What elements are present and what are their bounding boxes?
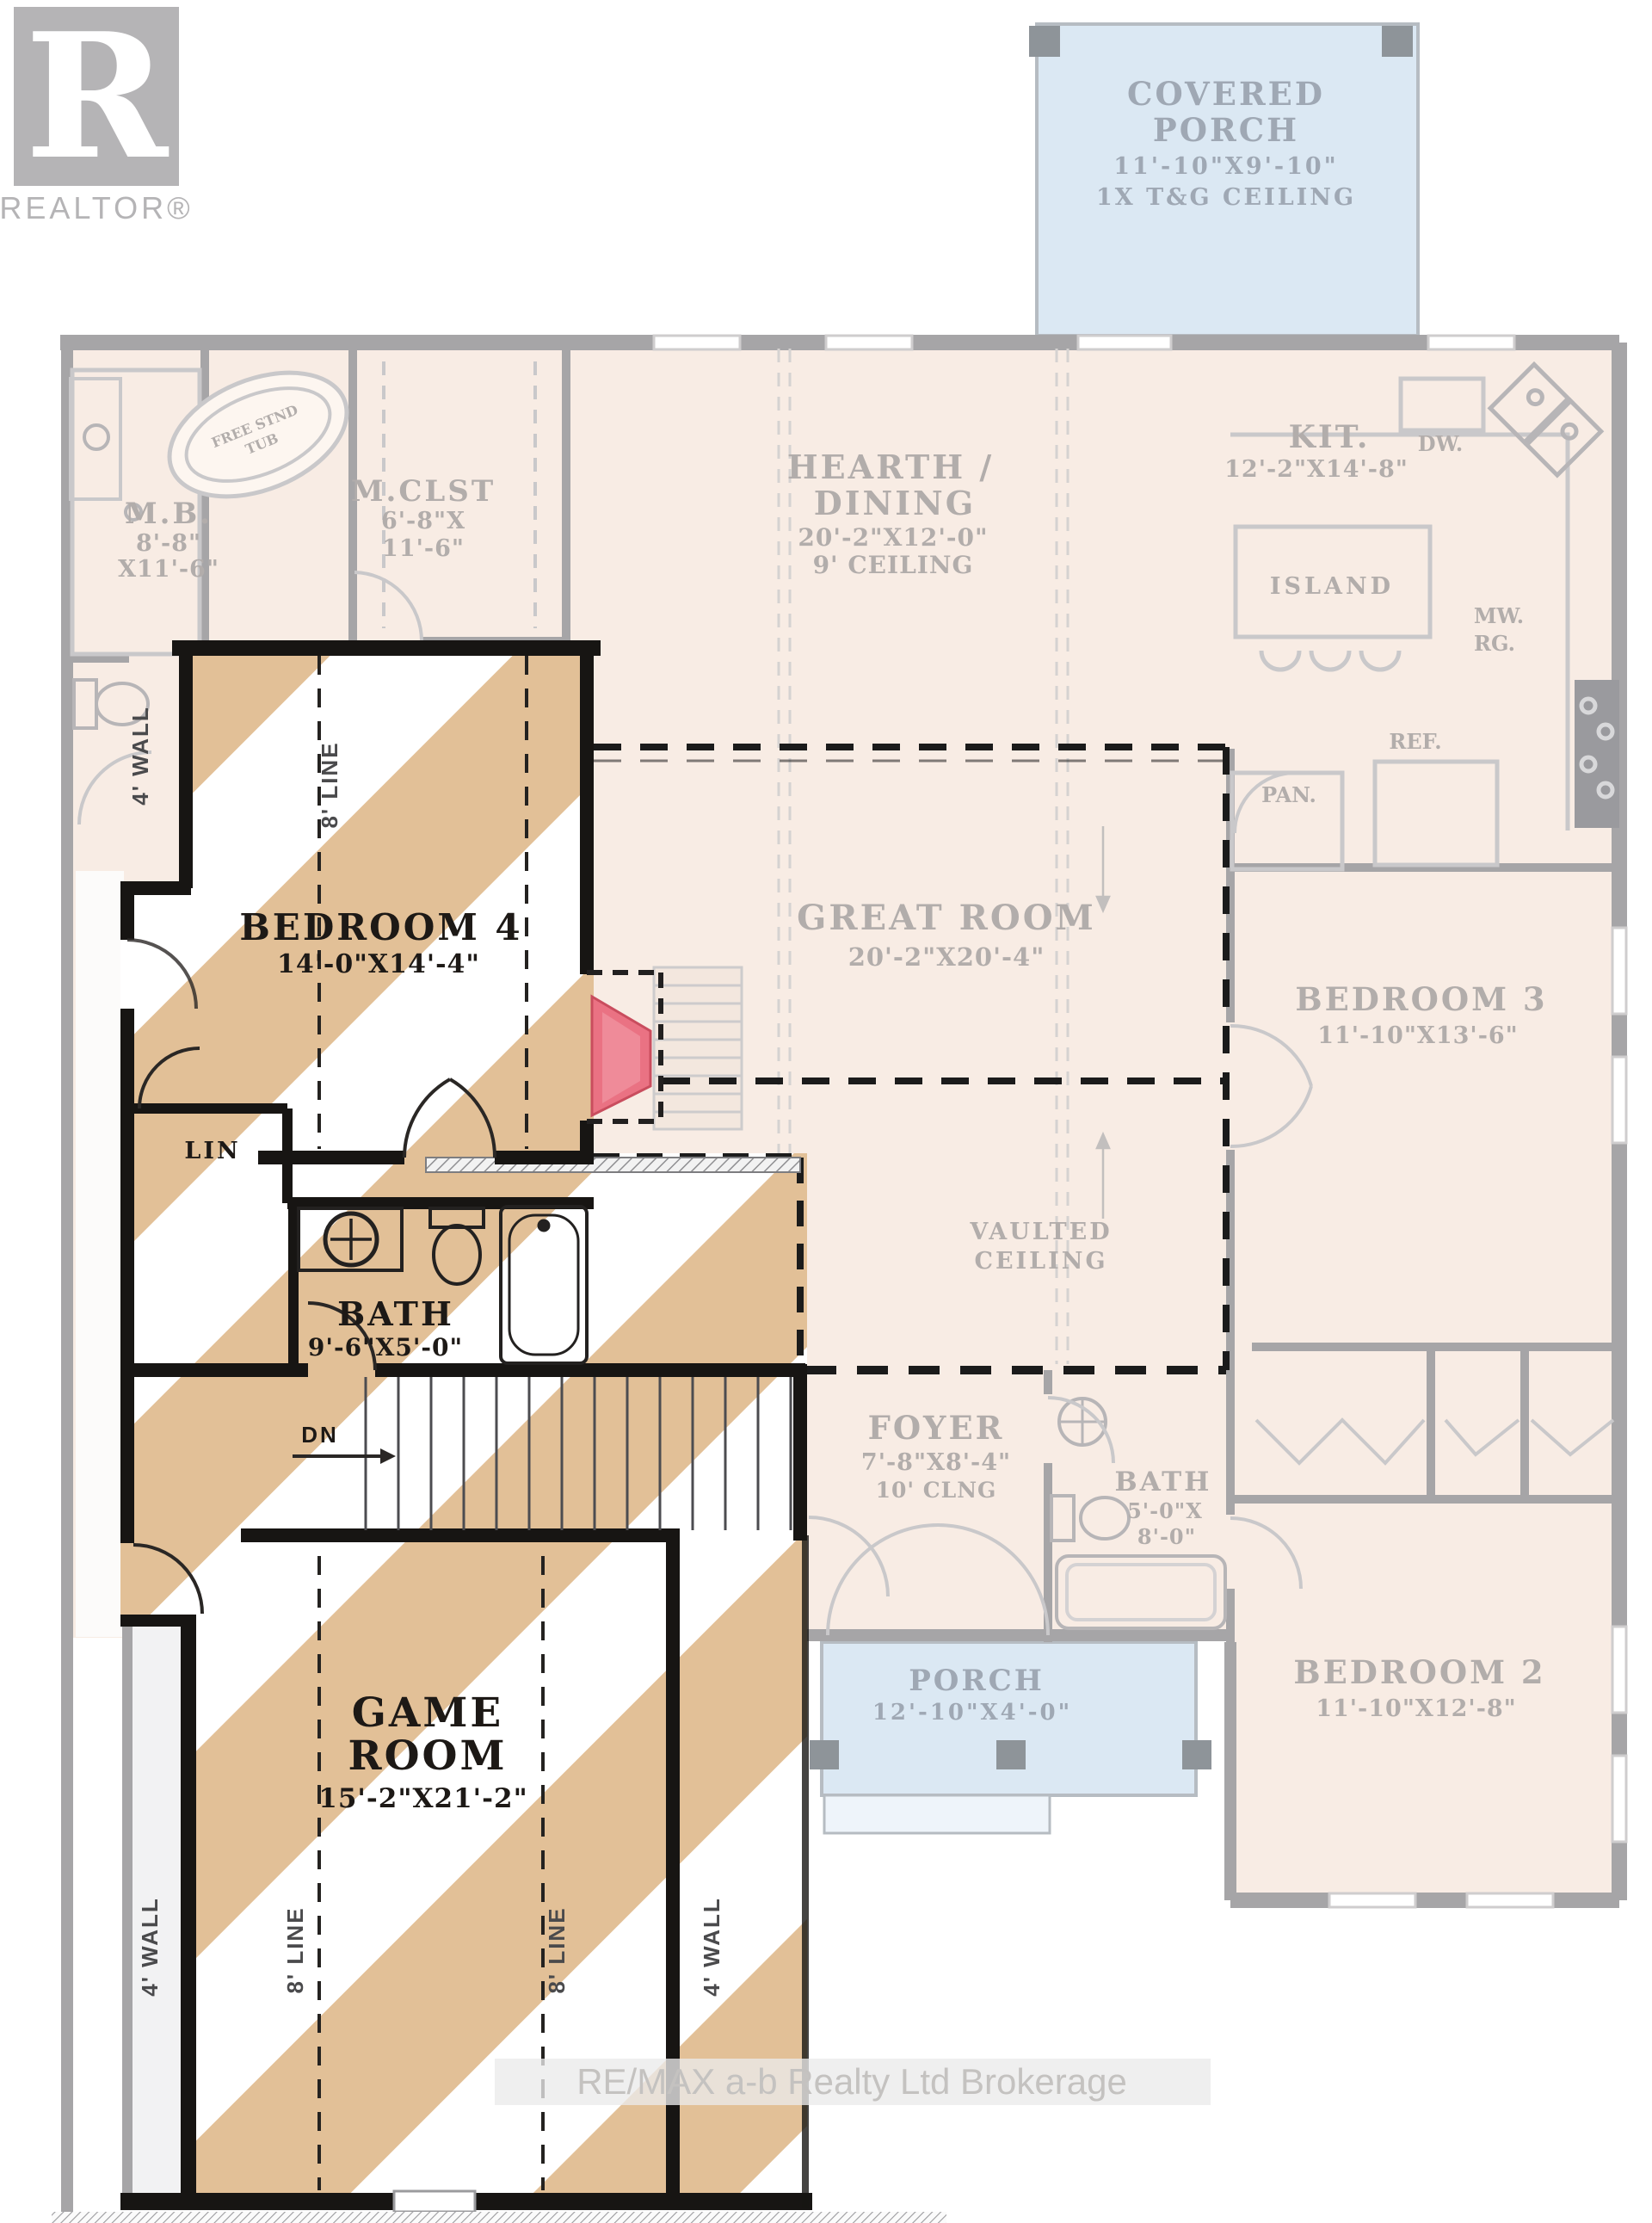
great-room-dims: 20'-2"X20'-4"	[848, 942, 1045, 972]
kit-label: KIT.	[1289, 419, 1371, 455]
porch-post-icon	[1029, 26, 1060, 57]
bath2-label: BATH	[337, 1294, 454, 1333]
window	[394, 2191, 475, 2212]
bath2-dims: 9'-6"X5'-0"	[308, 1333, 463, 1362]
stairs-faded	[654, 967, 742, 1129]
porch-post-icon	[810, 1740, 839, 1769]
bedroom3-label: BEDROOM 3	[1295, 980, 1547, 1018]
brokerage-watermark: RE/MAX a-b Realty Ltd Brokerage	[495, 2059, 1211, 2105]
bath1-label: BATH	[1115, 1467, 1212, 1497]
mb-dims2: X11'-6"	[118, 556, 219, 583]
line-label-8ft-game-right: 8' LINE	[544, 1906, 570, 1993]
line-label-8ft-game-left: 8' LINE	[282, 1906, 308, 1993]
covered-porch-label2: PORCH	[1153, 111, 1299, 149]
hearth-note: 9' CEILING	[813, 551, 974, 579]
game-room-label2: ROOM	[348, 1732, 508, 1780]
mclst-label: M.CLST	[351, 474, 496, 509]
realtor-logo-text: REALTOR®	[0, 190, 194, 225]
bedroom4-label: BEDROOM 4	[239, 906, 522, 948]
hearth-label2: DINING	[814, 484, 976, 522]
mw-label: MW.	[1474, 603, 1524, 628]
kit-dims: 12'-2"X14'-8"	[1224, 456, 1409, 483]
realtor-logo: R REALTOR®	[0, 0, 194, 225]
lin-label: LIN	[184, 1138, 240, 1164]
game-room-dims: 15'-2"X21'-2"	[318, 1783, 528, 1814]
bedroom3-dims: 11'-10"X13'-6"	[1317, 1022, 1519, 1049]
porch-dims: 12'-10"X4'-0"	[872, 1700, 1072, 1726]
foyer-dims: 7'-8"X8'-4"	[861, 1449, 1011, 1476]
game-room-label: GAME	[352, 1689, 503, 1737]
floor-plan-image: COVERED PORCH 11'-10"X9'-10" 1X T&G CEIL…	[0, 0, 1652, 2223]
covered-porch	[1029, 24, 1418, 336]
floor-plan-svg: COVERED PORCH 11'-10"X9'-10" 1X T&G CEIL…	[0, 0, 1652, 2223]
rg-label: RG.	[1474, 631, 1515, 656]
mb-label: M.B.	[125, 497, 213, 531]
covered-porch-label: COVERED	[1127, 75, 1325, 113]
ref-label: REF.	[1389, 729, 1441, 754]
foundation-hatch	[52, 2212, 946, 2223]
porch-post-icon	[996, 1740, 1026, 1769]
mclst-dims2: 11'-6"	[382, 535, 465, 562]
porch-post-icon	[1182, 1740, 1211, 1769]
bath1-dims2: 8'-0"	[1137, 1524, 1196, 1549]
hearth-dims: 20'-2"X12'-0"	[798, 523, 988, 552]
bath1-dims1: 5'-0"X	[1127, 1498, 1203, 1523]
vaulted-label: VAULTED	[969, 1219, 1112, 1245]
porch-post-icon	[1382, 26, 1413, 57]
wall-label-4ft-lower-left: 4' WALL	[137, 1897, 163, 1997]
bedroom4-dims: 14'-0"X14'-4"	[277, 949, 480, 979]
dn-label: DN	[301, 1422, 339, 1448]
pan-label: PAN.	[1261, 782, 1316, 807]
bedroom2-dims: 11'-10"X12'-8"	[1316, 1695, 1517, 1722]
covered-porch-dims: 11'-10"X9'-10"	[1113, 153, 1339, 180]
vaulted-label2: CEILING	[974, 1248, 1107, 1275]
dw-label: DW.	[1418, 431, 1463, 456]
hearth-label: HEARTH /	[787, 448, 995, 486]
foyer-note: 10' CLNG	[876, 1478, 997, 1503]
wall-label-4ft-upper: 4' WALL	[127, 706, 153, 806]
covered-porch-note: 1X T&G CEILING	[1096, 184, 1356, 211]
realtor-logo-letter: R	[25, 0, 170, 198]
foyer-label: FOYER	[868, 1409, 1005, 1447]
wall-label-4ft-lower-right: 4' WALL	[699, 1897, 724, 1997]
mclst-dims1: 6'-8"X	[381, 508, 465, 534]
watermark-text: RE/MAX a-b Realty Ltd Brokerage	[576, 2061, 1127, 2102]
porch-steps	[824, 1795, 1050, 1833]
bedroom2-label: BEDROOM 2	[1293, 1653, 1545, 1691]
great-room-label: GREAT ROOM	[797, 898, 1096, 938]
island-label: ISLAND	[1270, 573, 1394, 600]
mb-dims1: 8'-8"	[136, 530, 201, 557]
line-label-8ft-bed4: 8' LINE	[317, 741, 342, 828]
porch-label: PORCH	[909, 1664, 1045, 1698]
railing	[426, 1158, 800, 1172]
